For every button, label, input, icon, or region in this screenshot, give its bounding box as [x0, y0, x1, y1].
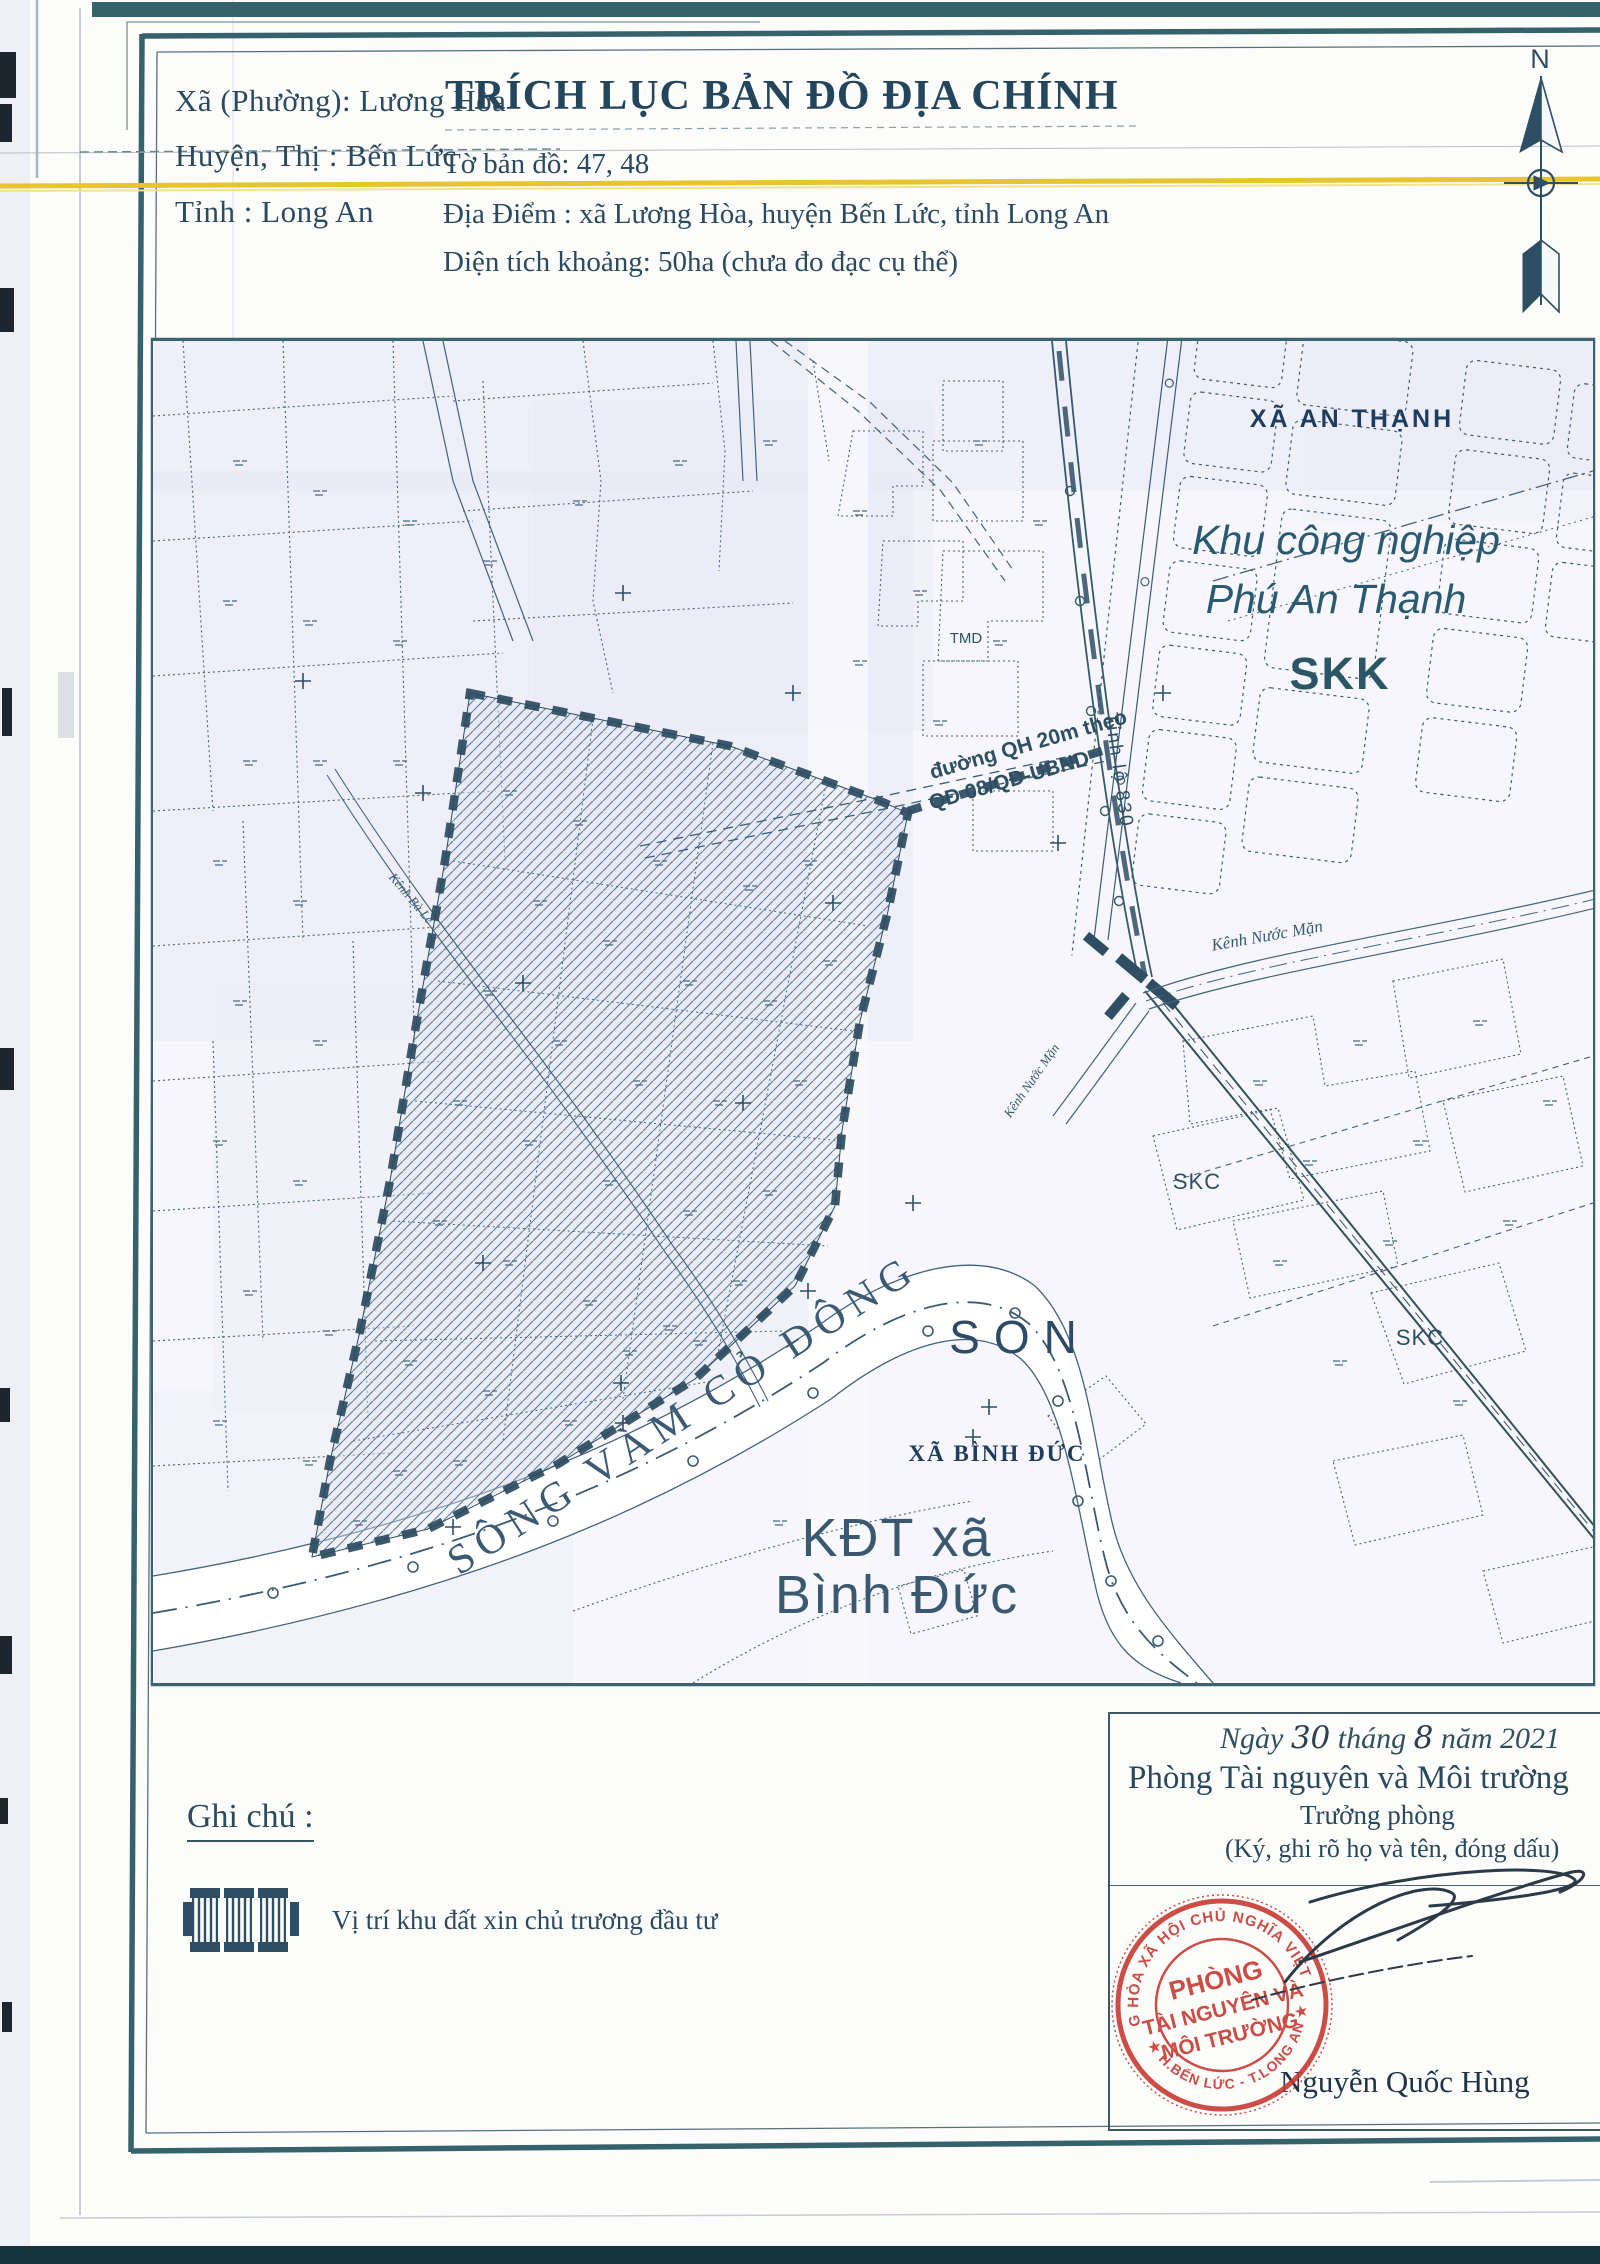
label-industrial-zone-1: Khu công nghiệp: [1192, 517, 1500, 563]
scan-top-bar: [92, 2, 1600, 17]
label-xa-an-thanh: XÃ AN THẠNH: [1250, 403, 1454, 433]
scan-bottom-bar: [0, 2246, 1600, 2264]
location-field: Địa Điểm : xã Lương Hòa, huyện Bến Lức, …: [443, 198, 1109, 231]
label-skc-2: SKC: [1396, 1325, 1444, 1350]
label-son: SON: [949, 1311, 1091, 1363]
area-field: Diện tích khoảng: 50ha (chưa đo đạc cụ t…: [443, 246, 958, 279]
scanned-cadastral-document: N: [0, 0, 1600, 2264]
label-skk: SKK: [1289, 648, 1390, 699]
label-tmd: TMD: [950, 630, 983, 647]
signature-date: Ngày 30 tháng 8 năm 2021: [1220, 1720, 1560, 1756]
north-letter: N: [1530, 44, 1550, 74]
label-kdt-1: KĐT xã: [801, 1508, 992, 1568]
district-field: Huyện, Thị : Bến Lức: [175, 138, 457, 174]
cadastral-map: XÃ AN THẠNH Khu công nghiệp Phú An Thạnh…: [153, 340, 1593, 1684]
legend-symbol: [183, 1888, 299, 1952]
province-field: Tỉnh : Long An: [175, 194, 374, 230]
legend-heading: Ghi chú :: [187, 1798, 314, 1842]
scan-edge-band: [0, 0, 30, 2264]
label-kdt-2: Bình Đức: [775, 1565, 1019, 1625]
handwritten-day: 30: [1291, 1720, 1330, 1756]
stamp-and-signature: CỘNG HÒA XÃ HỘI CHỦ NGHĨA VIỆT NAM ★ H.B…: [1080, 1860, 1600, 2200]
position-title: Trưởng phòng: [1300, 1800, 1455, 1831]
legend-item-label: Vị trí khu đất xin chủ trương đầu tư: [332, 1905, 718, 1936]
handwritten-month: 8: [1414, 1720, 1434, 1756]
red-stamp: CỘNG HÒA XÃ HỘI CHỦ NGHĨA VIỆT NAM ★ H.B…: [1080, 1860, 1355, 2200]
label-skc-1: SKC: [1173, 1169, 1221, 1194]
department-name: Phòng Tài nguyên và Môi trường: [1128, 1760, 1569, 1797]
yellow-scan-line: [0, 179, 1600, 191]
label-xa-binh-duc: XÃ BÌNH ĐỨC: [908, 1441, 1085, 1466]
document-title: TRÍCH LỤC BẢN ĐỒ ĐỊA CHÍNH: [445, 72, 1119, 120]
label-industrial-zone-2: Phú An Thạnh: [1206, 576, 1467, 622]
map-sheet-field: Tờ bản đồ: 47, 48: [443, 148, 649, 181]
